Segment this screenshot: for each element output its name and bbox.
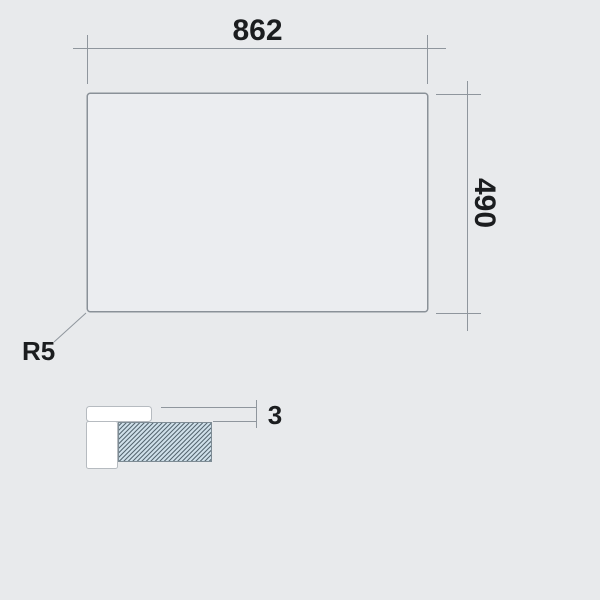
corner-radius-label: R5 (22, 338, 55, 364)
technical-drawing (0, 0, 600, 600)
radius-leader-line (54, 313, 86, 342)
thickness-dimension-label: 3 (257, 402, 293, 428)
drawing-canvas: 862 490 R5 3 (0, 0, 600, 600)
width-dimension-label: 862 (87, 16, 428, 46)
profile-top-bar (87, 407, 152, 422)
height-dimension-label: 490 (469, 178, 499, 228)
core-hatch-section (119, 423, 212, 462)
profile-side-bar (87, 422, 118, 469)
panel-outline (87, 93, 428, 312)
